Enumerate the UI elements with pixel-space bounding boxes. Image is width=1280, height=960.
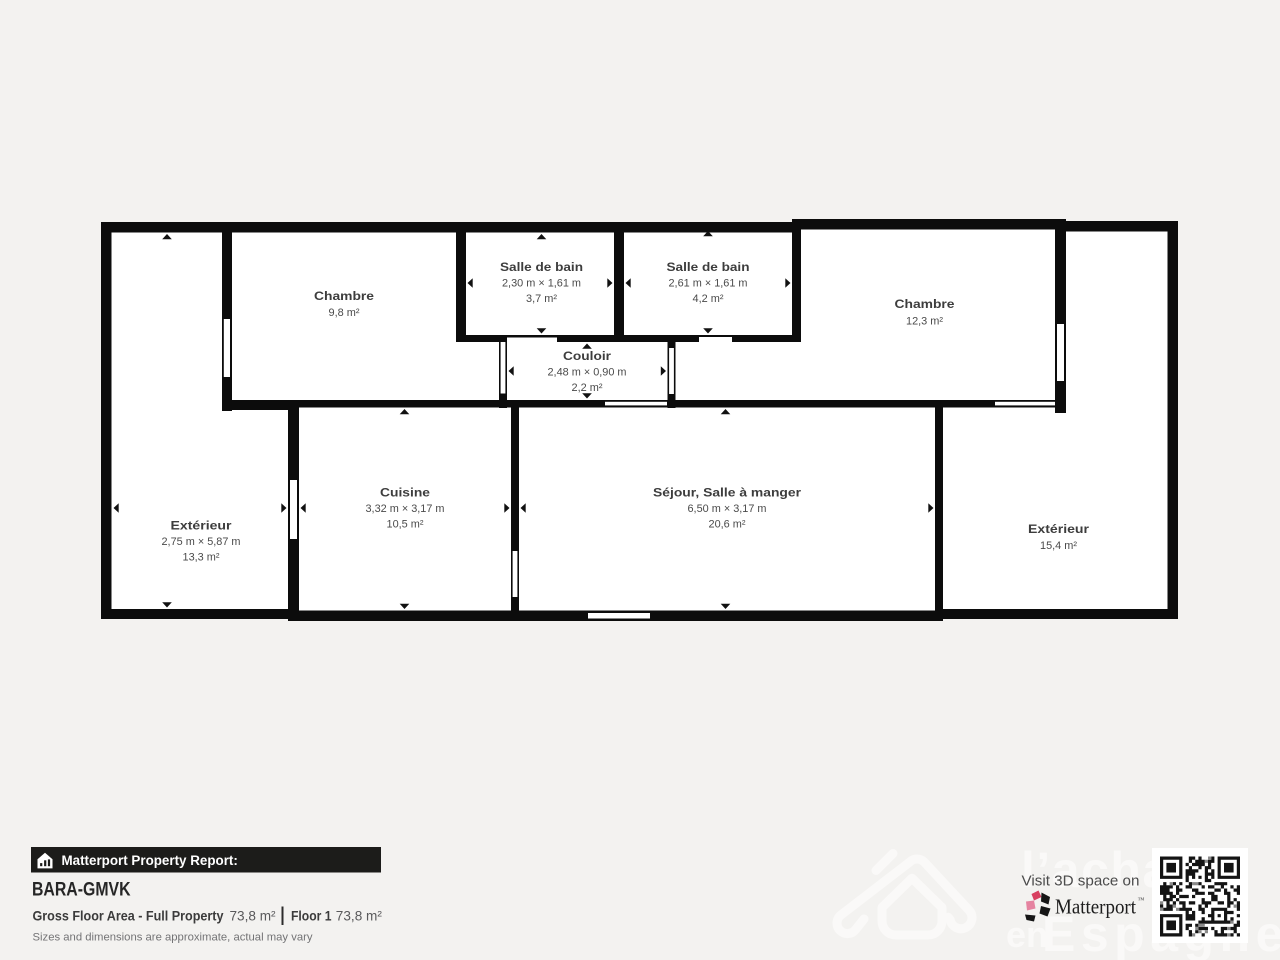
svg-text:12,3 m²: 12,3 m² [906, 316, 943, 328]
svg-text:Sizes and dimensions are appro: Sizes and dimensions are approximate, ac… [33, 931, 313, 943]
svg-text:20,6 m²: 20,6 m² [709, 519, 746, 531]
svg-text:2,61 m × 1,61 m: 2,61 m × 1,61 m [669, 278, 748, 290]
svg-text:Extérieur: Extérieur [1028, 522, 1089, 536]
svg-text:Chambre: Chambre [314, 289, 375, 303]
svg-text:2,48 m × 0,90 m: 2,48 m × 0,90 m [548, 367, 627, 379]
svg-text:10,5 m²: 10,5 m² [387, 519, 424, 531]
svg-text:Gross Floor Area - Full Proper: Gross Floor Area - Full Property [33, 908, 225, 923]
svg-text:BARA-GMVK: BARA-GMVK [32, 879, 131, 901]
svg-text:Extérieur: Extérieur [171, 519, 232, 533]
svg-text:73,8 m²: 73,8 m² [230, 908, 277, 923]
svg-text:Matterport: Matterport [1055, 895, 1136, 919]
svg-text:Floor 1: Floor 1 [291, 908, 332, 923]
svg-text:9,8 m²: 9,8 m² [329, 307, 360, 319]
svg-text:Chambre: Chambre [895, 297, 956, 311]
svg-text:2,2 m²: 2,2 m² [572, 382, 603, 394]
svg-text:2,30 m × 1,61 m: 2,30 m × 1,61 m [502, 278, 581, 290]
svg-text:15,4 m²: 15,4 m² [1040, 540, 1077, 552]
svg-text:Matterport Property Report:: Matterport Property Report: [62, 853, 238, 868]
svg-text:Salle de bain: Salle de bain [500, 260, 583, 274]
svg-text:™: ™ [1138, 896, 1145, 904]
svg-text:Visit 3D space on: Visit 3D space on [1022, 873, 1140, 890]
svg-text:13,3 m²: 13,3 m² [183, 552, 220, 564]
svg-text:l’acha: l’acha [1021, 842, 1172, 898]
svg-text:Séjour, Salle à manger: Séjour, Salle à manger [653, 486, 801, 500]
svg-text:Cuisine: Cuisine [380, 486, 431, 500]
svg-text:3,32 m × 3,17 m: 3,32 m × 3,17 m [366, 503, 445, 515]
svg-text:Salle de bain: Salle de bain [667, 260, 750, 274]
svg-text:2,75 m × 5,87 m: 2,75 m × 5,87 m [162, 536, 241, 548]
svg-text:6,50 m × 3,17 m: 6,50 m × 3,17 m [688, 503, 767, 515]
svg-text:3,7 m²: 3,7 m² [526, 293, 557, 305]
svg-text:4,2 m²: 4,2 m² [693, 293, 724, 305]
svg-text:73,8 m²: 73,8 m² [336, 908, 383, 923]
svg-text:Couloir: Couloir [563, 349, 611, 363]
